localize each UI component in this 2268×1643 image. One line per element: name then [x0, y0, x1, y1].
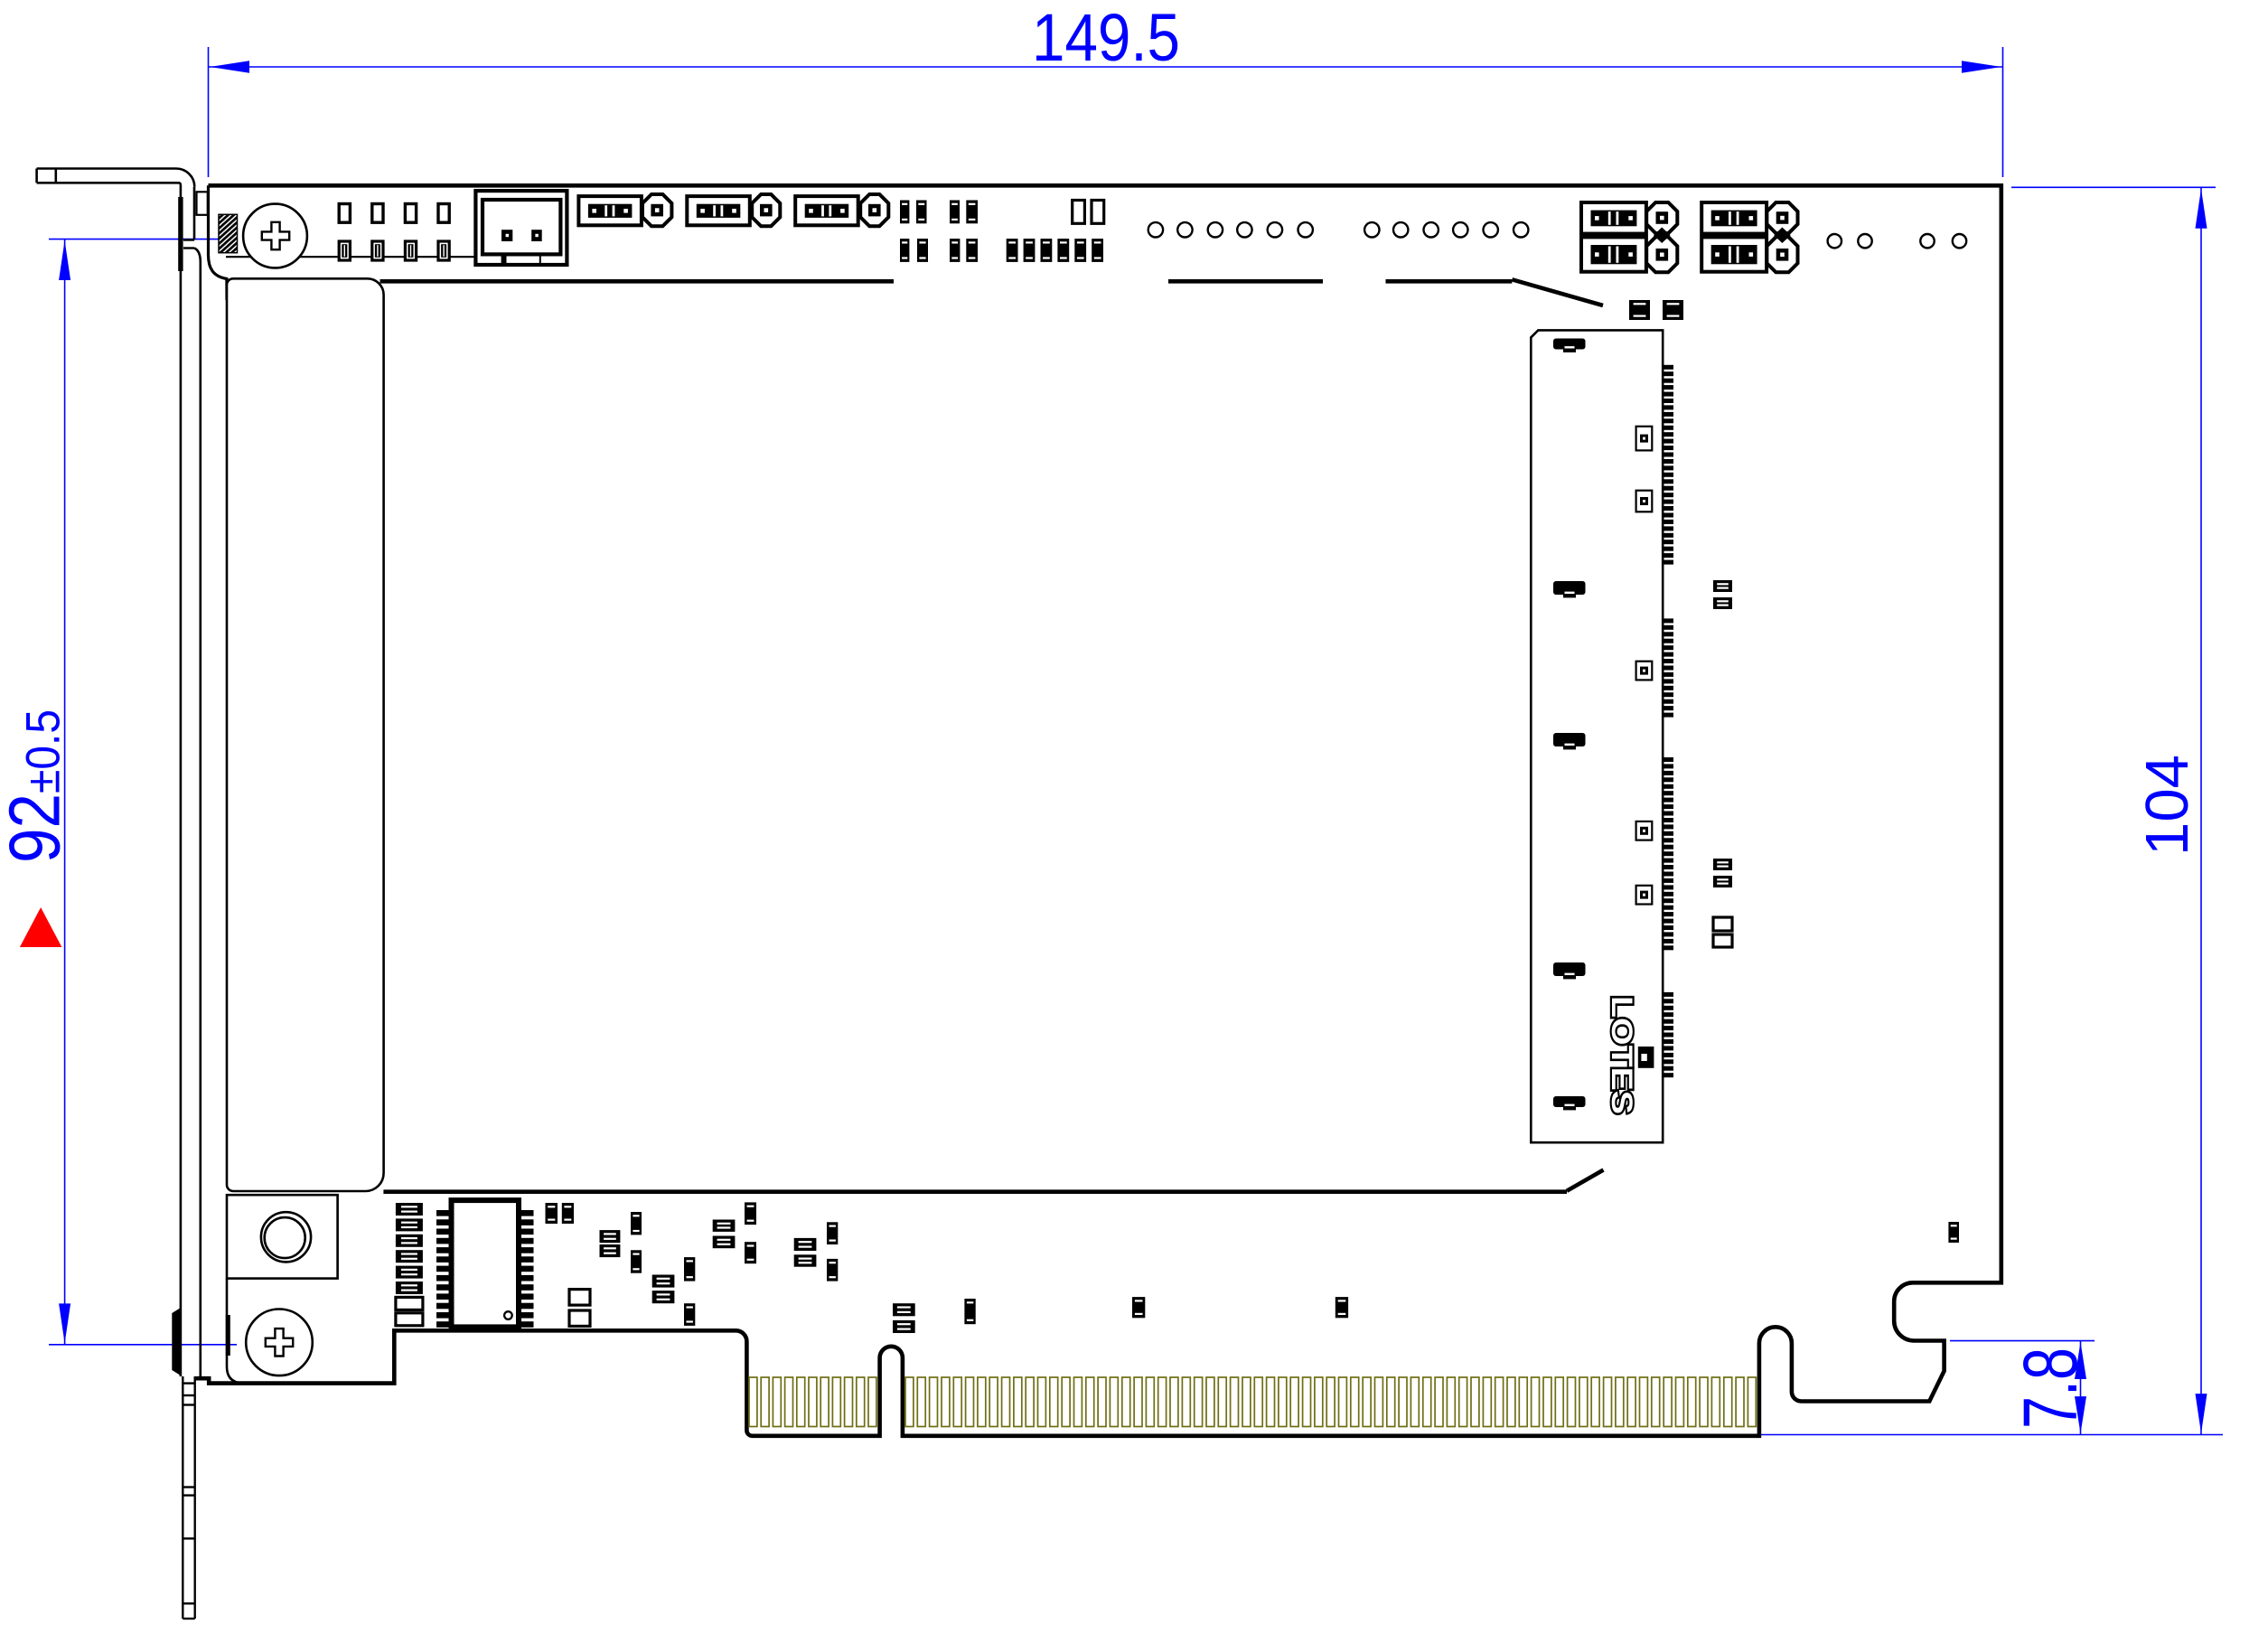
svg-text:104: 104 [2133, 755, 2201, 856]
svg-text:7.8: 7.8 [2008, 1347, 2093, 1429]
svg-text:±0.5: ±0.5 [17, 709, 70, 793]
svg-text:LOTES: LOTES [1606, 996, 1638, 1114]
svg-text:149.5: 149.5 [1032, 0, 1180, 75]
svg-text:92: 92 [0, 793, 75, 863]
